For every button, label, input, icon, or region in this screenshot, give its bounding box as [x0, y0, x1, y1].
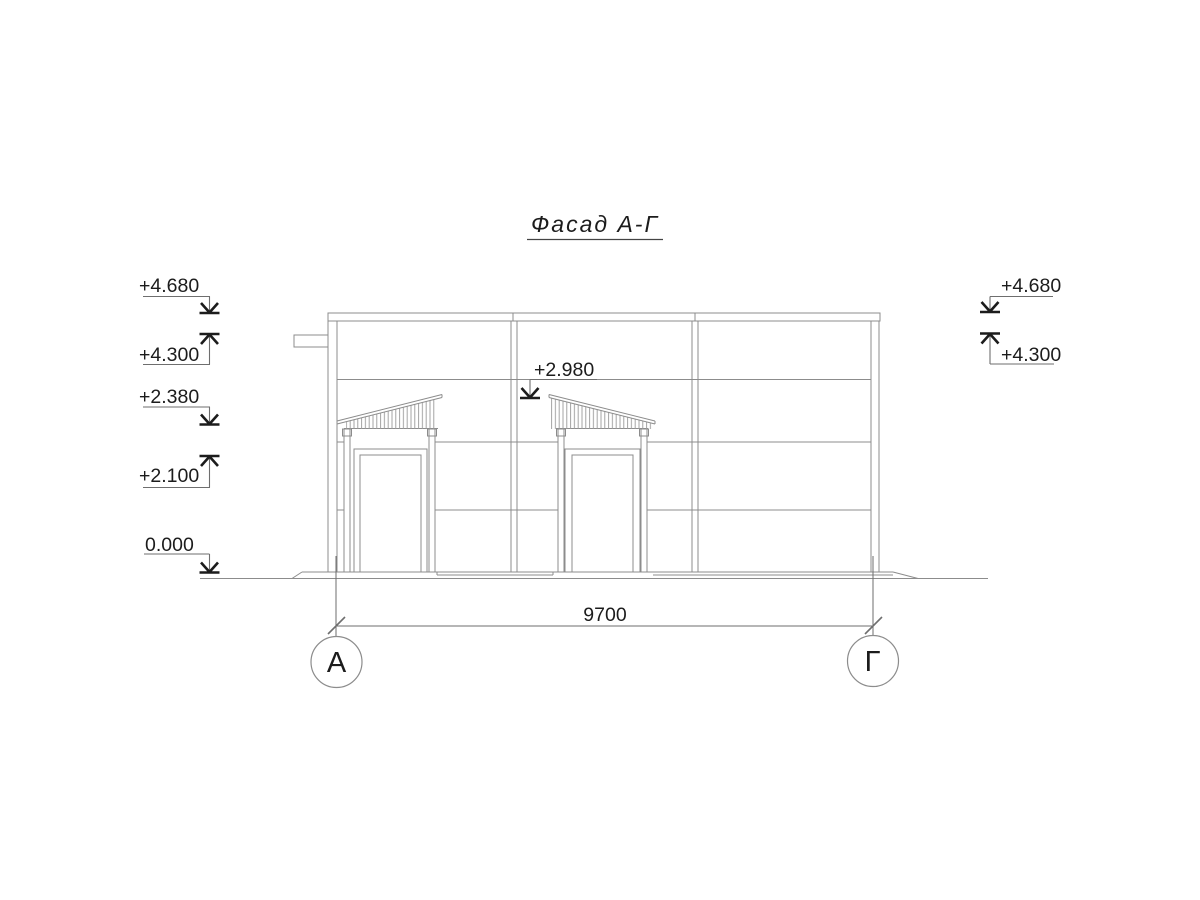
elevation-mark: +2.100 [139, 456, 220, 488]
elevation-value: +4.300 [1001, 344, 1061, 366]
door2-canopy-hatch [551, 398, 653, 429]
plinth-slope-right [893, 572, 918, 579]
door1-frame [354, 449, 427, 572]
parapet-cap [328, 313, 880, 321]
elevation-mark: +2.980 [520, 359, 597, 398]
plinth-slope-left [292, 572, 302, 579]
gutter-outlet [294, 335, 328, 347]
elevation-value: +2.980 [534, 359, 594, 381]
elevation-mark: +4.300 [139, 334, 220, 366]
door2-frame [565, 449, 640, 572]
dimensioning: 9700 А Г [311, 556, 899, 688]
elevation-mark: +4.300 [980, 334, 1061, 367]
door1-leaf [360, 455, 421, 572]
elevation-value: 0.000 [145, 534, 194, 556]
door1-canopy-hatch [346, 399, 437, 429]
door2-left-post [558, 429, 564, 572]
axis-label-a: А [327, 647, 347, 679]
elevation-mark: +4.680 [980, 275, 1061, 312]
elevation-value: +4.680 [139, 275, 199, 297]
door2-right-post [641, 429, 647, 572]
title-text: Фасад А-Г [531, 211, 659, 237]
dimension-value: 9700 [583, 604, 627, 626]
door1-left-post [344, 429, 350, 572]
elevation-value: +2.380 [139, 386, 199, 408]
facade-elevation-drawing: Фасад А-Г [0, 0, 1200, 900]
elevation-mark: +4.680 [139, 275, 220, 313]
elevation-mark: 0.000 [144, 534, 220, 573]
elevation-marks-center: +2.980 [520, 359, 597, 398]
door2-leaf [572, 455, 633, 572]
drawing-title: Фасад А-Г [527, 211, 663, 240]
building-outline [200, 313, 988, 579]
elevation-value: +4.300 [139, 344, 199, 366]
elevation-value: +2.100 [139, 465, 199, 487]
door1-right-post [429, 429, 435, 572]
axis-label-g: Г [865, 646, 881, 678]
elevation-marks-left: +4.680 +4.300 +2.380 +2.100 0.00 [139, 275, 220, 573]
canopies [292, 395, 918, 579]
elevation-marks-right: +4.680 +4.300 [980, 275, 1061, 366]
elevation-mark: +2.380 [139, 386, 220, 425]
elevation-value: +4.680 [1001, 275, 1061, 297]
drawing-sheet: Фасад А-Г [0, 0, 1200, 900]
